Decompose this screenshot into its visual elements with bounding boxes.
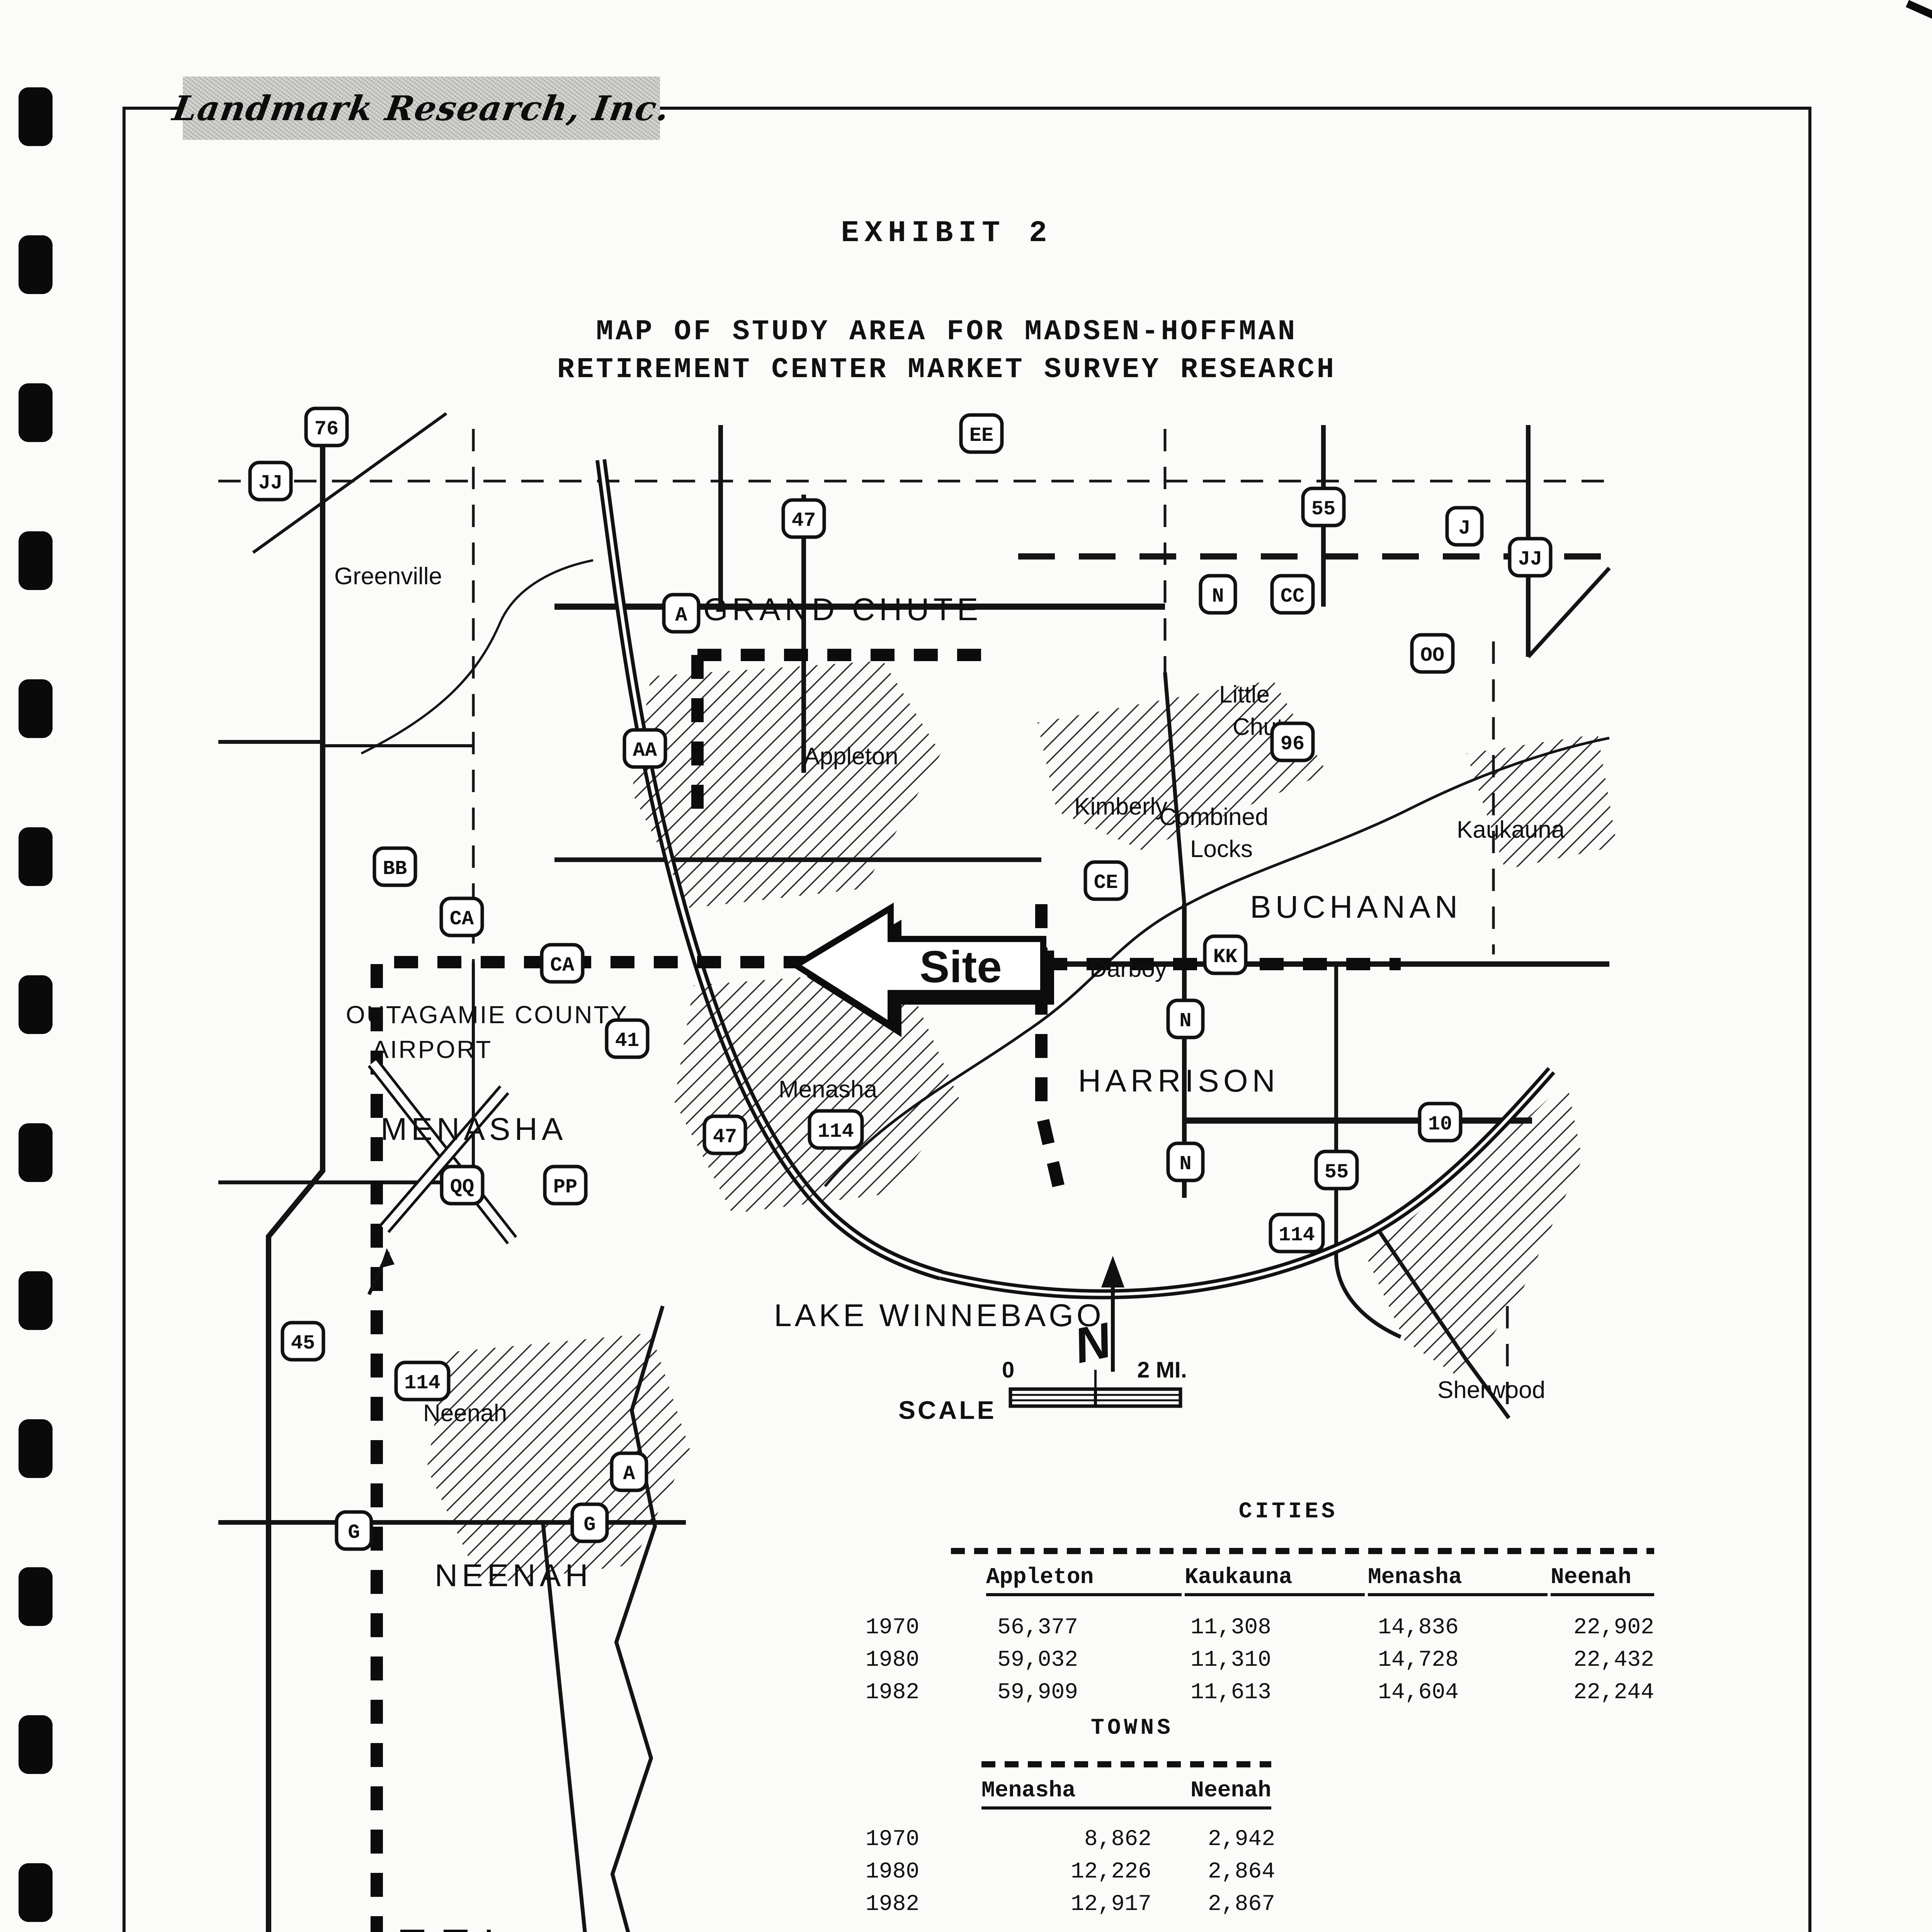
towns-col-neenah: Neenah (1163, 1778, 1271, 1810)
towns-table: TOWNS Menasha Neenah 19708,8622,94219801… (850, 1716, 1314, 1924)
row-value: 11,613 (1078, 1680, 1271, 1705)
row-value: 22,432 (1459, 1648, 1654, 1673)
cities-col-menasha: Menasha (1368, 1565, 1548, 1596)
svg-text:45: 45 (291, 1332, 315, 1355)
row-value: 11,310 (1078, 1648, 1271, 1673)
svg-text:J: J (1458, 517, 1470, 540)
row-value: 2,942 (1151, 1827, 1275, 1852)
svg-text:41: 41 (615, 1029, 639, 1052)
place-label: Locks (1190, 836, 1253, 862)
highway-shield: JJ (250, 463, 291, 500)
row-value: 22,244 (1459, 1680, 1654, 1705)
place-label: Sherwood (1437, 1377, 1545, 1403)
scale-bar: SCALE 0 2 MI. (898, 1357, 1187, 1424)
svg-text:BB: BB (383, 857, 407, 880)
company-logo: Landmark Research, Inc. (183, 77, 660, 140)
svg-text:CE: CE (1094, 871, 1118, 894)
highway-shield: 76 (306, 408, 347, 446)
township-label: HARRISON (1078, 1063, 1279, 1099)
highway-shield: 45 (282, 1323, 323, 1360)
highway-shield: 114 (810, 1111, 862, 1148)
svg-text:47: 47 (713, 1126, 737, 1148)
place-label: Appleton (804, 743, 898, 770)
svg-text:CA: CA (450, 908, 474, 930)
row-year: 1980 (850, 1648, 943, 1673)
highway-shield: CA (542, 945, 583, 982)
highway-shield: 96 (1272, 723, 1313, 760)
highway-shield: BB (374, 848, 415, 885)
towns-dashed-rule (981, 1761, 1271, 1767)
cities-col-neenah: Neenah (1551, 1565, 1654, 1596)
binding-hole (19, 87, 53, 146)
airport-label: AIRPORT (372, 1036, 492, 1063)
highway-shield: N (1168, 1000, 1203, 1037)
township-label: MENASHA (381, 1112, 567, 1147)
highway-shield: CE (1085, 862, 1126, 899)
company-logo-text: Landmark Research, Inc. (170, 88, 673, 128)
place-label: Greenville (334, 563, 442, 590)
row-value: 14,604 (1271, 1680, 1459, 1705)
table-row: 19708,8622,942 (850, 1827, 1275, 1859)
towns-table-title: TOWNS (1091, 1716, 1173, 1741)
table-row: 197056,37711,30814,83622,902 (850, 1615, 1654, 1648)
highway-shield: 41 (607, 1020, 648, 1057)
table-row: 198012,2262,864 (850, 1859, 1275, 1892)
cities-table: CITIES Appleton Kaukauna Menasha Neenah … (850, 1499, 1669, 1723)
binding-hole (19, 1863, 53, 1922)
svg-text:N: N (1212, 585, 1224, 608)
row-value: 14,836 (1271, 1615, 1459, 1640)
highway-shield: 10 (1420, 1104, 1461, 1141)
highway-shield: PP (545, 1167, 586, 1204)
highway-shield: KK (1205, 936, 1246, 973)
page-title-line2: RETIREMENT CENTER MARKET SURVEY RESEARCH (298, 351, 1596, 389)
highway-shield: OO (1412, 635, 1453, 672)
row-value: 2,864 (1151, 1859, 1275, 1884)
highway-shield: AA (624, 730, 665, 767)
svg-text:CC: CC (1281, 585, 1304, 608)
row-year: 1982 (850, 1680, 943, 1705)
place-label: Kimberly (1074, 793, 1167, 820)
binding-hole (19, 975, 53, 1034)
svg-text:55: 55 (1325, 1161, 1349, 1184)
cities-dashed-rule (951, 1548, 1654, 1554)
row-value: 22,902 (1459, 1615, 1654, 1640)
scale-zero: 0 (1002, 1357, 1014, 1383)
svg-text:96: 96 (1281, 733, 1304, 755)
row-year: 1982 (850, 1892, 951, 1917)
document-page: Landmark Research, Inc. EXHIBIT 2 MAP OF… (0, 0, 1932, 1932)
svg-text:PP: PP (553, 1176, 577, 1199)
highway-shield: G (572, 1504, 607, 1541)
towns-col-menasha: Menasha (981, 1778, 1163, 1810)
svg-text:55: 55 (1311, 498, 1335, 520)
svg-text:10: 10 (1428, 1113, 1452, 1136)
frame-left (122, 107, 126, 1932)
place-label: Menasha (779, 1076, 878, 1103)
svg-text:CA: CA (550, 954, 575, 977)
row-value: 14,728 (1271, 1648, 1459, 1673)
cities-col-appleton: Appleton (986, 1565, 1182, 1596)
binding-hole (19, 1123, 53, 1182)
place-label: Little (1219, 681, 1270, 708)
row-value: 12,226 (951, 1859, 1151, 1884)
highway-shield: G (337, 1512, 371, 1549)
row-year: 1970 (850, 1615, 943, 1640)
highway-shield: CC (1272, 576, 1313, 613)
scale-end: 2 MI. (1137, 1357, 1187, 1383)
binding-hole (19, 235, 53, 294)
table-row: 198259,90911,61314,60422,244 (850, 1680, 1654, 1713)
highway-shield: N (1168, 1143, 1203, 1180)
place-label: Darboy (1090, 956, 1167, 982)
highway-shield: A (612, 1453, 646, 1490)
svg-text:A: A (675, 604, 687, 627)
cities-rows: 197056,37711,30814,83622,902198059,03211… (850, 1615, 1654, 1713)
scan-artifact-corner (1906, 0, 1932, 29)
highway-shield: 114 (396, 1362, 449, 1400)
highway-shield: EE (961, 415, 1002, 452)
place-label: Combined (1159, 804, 1269, 830)
svg-text:OO: OO (1420, 644, 1444, 667)
binding-hole (19, 1567, 53, 1626)
row-value: 11,308 (1078, 1615, 1271, 1640)
township-label: GRAND CHUTE (703, 592, 982, 627)
svg-text:N: N (1179, 1153, 1191, 1175)
airport-label: OUTAGAMIE COUNTY (346, 1001, 628, 1029)
highway-shield: 47 (704, 1116, 745, 1153)
row-value: 8,862 (951, 1827, 1151, 1852)
row-year: 1980 (850, 1859, 951, 1884)
cities-table-title: CITIES (1239, 1499, 1338, 1524)
row-value: 2,867 (1151, 1892, 1275, 1917)
highway-shield: CA (441, 898, 482, 935)
svg-text:QQ: QQ (450, 1176, 474, 1199)
place-label: Neenah (423, 1400, 507, 1427)
scale-label: SCALE (898, 1396, 997, 1424)
binding-hole (19, 679, 53, 738)
highway-shield: JJ (1510, 539, 1551, 576)
place-label: Kaukauna (1457, 816, 1565, 843)
svg-text:76: 76 (315, 418, 338, 440)
binding-hole (19, 1419, 53, 1478)
highway-shield: 55 (1316, 1151, 1357, 1189)
svg-text:JJ: JJ (259, 472, 282, 495)
row-year: 1970 (850, 1827, 951, 1852)
binding-hole (19, 1715, 53, 1774)
svg-text:G: G (348, 1521, 360, 1544)
svg-text:114: 114 (1279, 1224, 1315, 1247)
row-value: 56,377 (943, 1615, 1078, 1640)
page-title: MAP OF STUDY AREA FOR MADSEN-HOFFMAN RET… (298, 313, 1596, 389)
highway-shield: A (664, 595, 699, 632)
highway-shield: QQ (442, 1167, 483, 1204)
binding-hole (19, 531, 53, 590)
binding-hole (19, 1271, 53, 1330)
svg-text:N: N (1179, 1010, 1191, 1032)
svg-text:KK: KK (1213, 946, 1238, 968)
binding-hole (19, 383, 53, 442)
site-label: Site (920, 942, 1002, 992)
svg-text:47: 47 (792, 509, 816, 532)
table-row: 198212,9172,867 (850, 1892, 1275, 1924)
township-label: BUCHANAN (1250, 889, 1462, 925)
svg-text:G: G (583, 1514, 595, 1536)
highway-shield: 55 (1303, 488, 1344, 526)
svg-text:114: 114 (818, 1120, 854, 1143)
frame-right (1808, 107, 1811, 1932)
exhibit-title: EXHIBIT 2 (348, 216, 1546, 250)
svg-text:EE: EE (969, 424, 993, 447)
towns-rows: 19708,8622,942198012,2262,864198212,9172… (850, 1827, 1275, 1924)
page-title-line1: MAP OF STUDY AREA FOR MADSEN-HOFFMAN (298, 313, 1596, 351)
highway-shield: J (1447, 508, 1482, 545)
binding-hole (19, 827, 53, 886)
township-label: NEENAH (435, 1558, 592, 1593)
highway-shield: 47 (783, 500, 824, 537)
table-row: 198059,03211,31014,72822,432 (850, 1648, 1654, 1680)
lake-label: LAKE WINNEBAGO (774, 1298, 1104, 1333)
row-value: 59,032 (943, 1648, 1078, 1673)
svg-text:A: A (623, 1463, 635, 1485)
cities-col-kaukauna: Kaukauna (1185, 1565, 1365, 1596)
highway-shield: N (1201, 576, 1235, 613)
svg-text:114: 114 (404, 1372, 440, 1395)
row-value: 12,917 (951, 1892, 1151, 1917)
highway-shield: 114 (1270, 1214, 1323, 1252)
svg-text:JJ: JJ (1518, 548, 1542, 571)
svg-text:AA: AA (633, 739, 657, 762)
row-value: 59,909 (943, 1680, 1078, 1705)
